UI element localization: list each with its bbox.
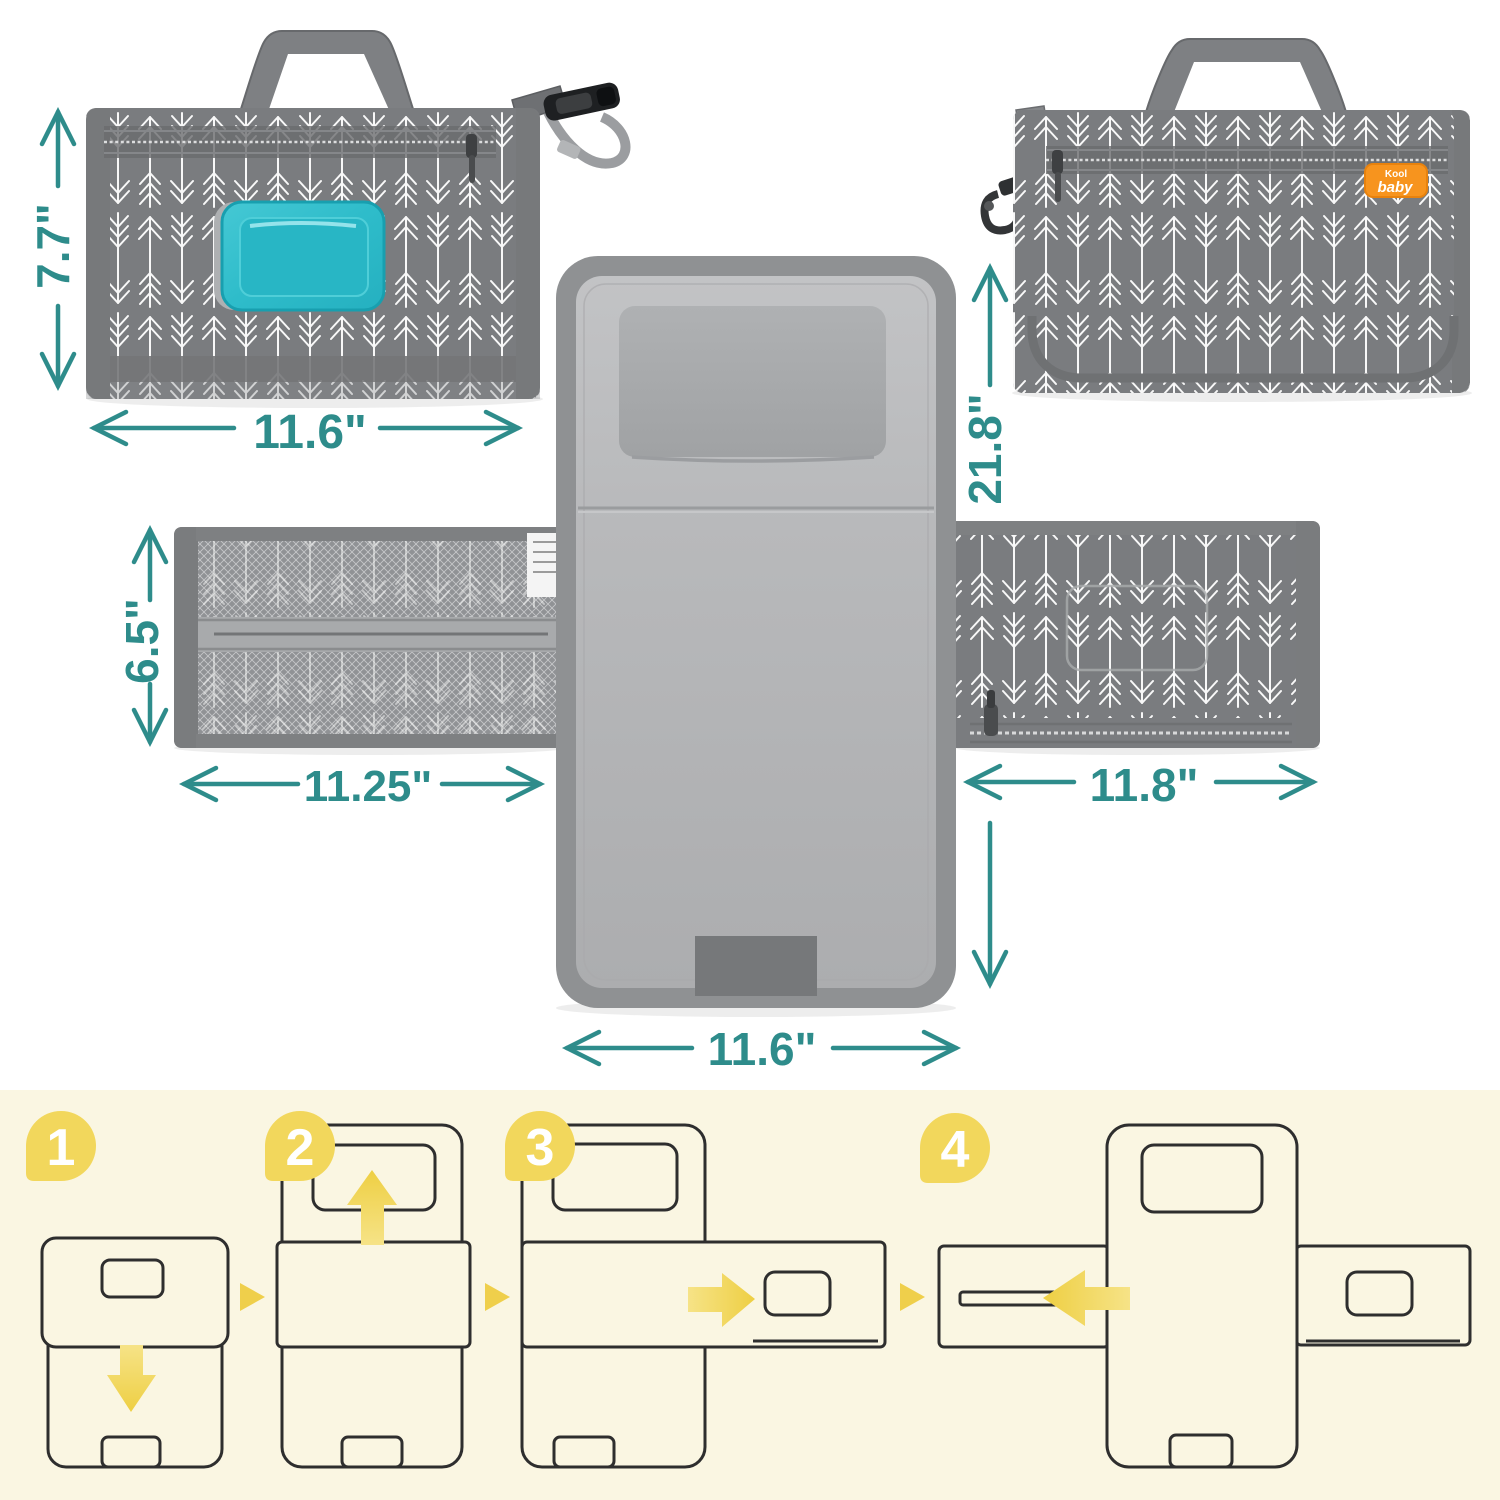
svg-text:2: 2 <box>286 1119 315 1177</box>
svg-text:11.6": 11.6" <box>708 1023 817 1075</box>
svg-text:baby: baby <box>1377 179 1413 196</box>
svg-text:11.25": 11.25" <box>304 762 433 811</box>
svg-text:6.5": 6.5" <box>116 598 168 684</box>
svg-text:7.7": 7.7" <box>27 203 79 289</box>
svg-text:11.8": 11.8" <box>1090 759 1199 811</box>
svg-text:3: 3 <box>526 1119 555 1177</box>
svg-text:21.8": 21.8" <box>959 393 1011 504</box>
svg-text:1: 1 <box>47 1119 76 1177</box>
svg-text:11.6": 11.6" <box>253 406 367 459</box>
svg-text:4: 4 <box>941 1121 970 1179</box>
